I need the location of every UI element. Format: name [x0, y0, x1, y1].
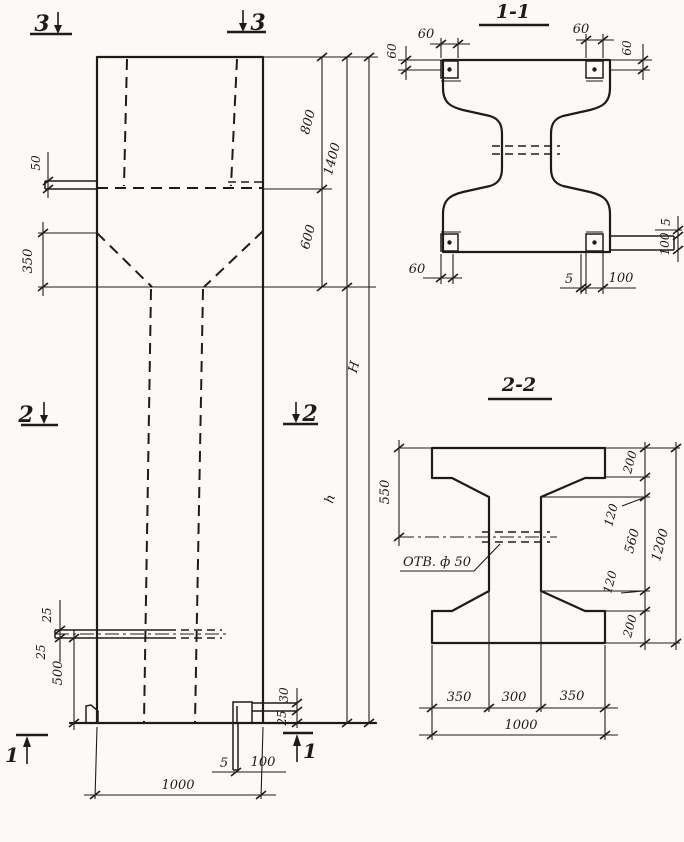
dim-label-plate-w: 100 — [251, 755, 276, 770]
dim-base-plate: 5 100 — [212, 755, 286, 776]
dim-label-bl: 60 — [409, 262, 426, 277]
dim-label-800: 800 — [298, 108, 319, 136]
section-marker-2-left: 2 — [17, 402, 58, 428]
section-marker-3-left: 3 — [30, 11, 72, 37]
dim-label-tr-v: 60 — [620, 40, 634, 56]
dim-label-tr-h: 60 — [573, 22, 590, 37]
dim-label-bot-200: 200 — [620, 613, 640, 640]
dim-label-r-t: 5 — [659, 218, 673, 226]
dim-label-1400: 1400 — [321, 141, 344, 177]
hole-callout: ОТВ. ф 50 — [400, 544, 500, 571]
marker-2-right-label: 2 — [301, 401, 317, 427]
drawing-sheet: 50 350 800 600 1400 h H — [0, 0, 684, 842]
dim-2-2-550: 550 — [378, 440, 432, 546]
dim-label-slot-lower: 25 — [34, 644, 48, 660]
dim-label-ledge: 50 — [29, 155, 43, 171]
dim-1-1-bottom-left: 60 — [409, 254, 462, 284]
section-2-2-outline — [432, 448, 605, 643]
marker-3-right-label: 3 — [250, 10, 265, 36]
dim-label-1000-width: 1000 — [504, 718, 537, 733]
marker-1-left-label: 1 — [5, 743, 19, 767]
dim-label-600: 600 — [298, 223, 319, 251]
section-marker-3-right: 3 — [227, 10, 266, 36]
section-marker-2-right: 2 — [283, 401, 318, 427]
dim-label-h: h — [322, 493, 339, 505]
hidden-lines-head — [97, 59, 263, 188]
down-arrow-icon — [54, 25, 62, 34]
dim-label-550: 550 — [378, 480, 393, 505]
up-arrow-icon — [293, 734, 301, 746]
dim-label-top-200: 200 — [620, 449, 640, 476]
marker-1-right-label: 1 — [303, 739, 317, 763]
dim-label-350b: 350 — [560, 689, 585, 704]
elevation-view: 50 350 800 600 1400 h H — [5, 10, 378, 799]
dim-label-taper: 350 — [21, 249, 36, 274]
dim-label-1000: 1000 — [161, 778, 194, 793]
dim-label-corner-b: 25 — [275, 710, 289, 726]
dim-label-corner-a: 30 — [277, 687, 291, 703]
dim-label-1200: 1200 — [649, 527, 672, 563]
dim-label-350a: 350 — [447, 690, 472, 705]
up-arrow-icon — [23, 736, 31, 747]
down-arrow-icon — [292, 414, 300, 423]
dim-label-560: 560 — [622, 527, 643, 555]
dim-label-br-t: 5 — [565, 272, 573, 287]
down-arrow-icon — [40, 415, 48, 424]
foot-slot — [55, 630, 228, 638]
dim-2-2-bottom: 350 300 350 1000 — [419, 645, 618, 740]
dim-width-1000: 1000 — [84, 727, 276, 799]
dim-label-br-w: 100 — [609, 271, 634, 286]
dim-right-stack: 800 600 1400 h H — [263, 53, 378, 727]
dim-1-1-right-strip: 5 100 — [655, 216, 683, 262]
dim-label-500: 500 — [51, 661, 66, 686]
section-2-2-view: 2-2 ОТВ. ф 50 550 — [378, 374, 681, 740]
column-drawing: 50 350 800 600 1400 h H — [0, 0, 684, 842]
hidden-lines-taper — [38, 231, 376, 722]
embedded-plate-bottom-right — [586, 232, 603, 251]
section-marker-1-right: 1 — [283, 733, 317, 763]
dim-label-tl-h: 60 — [418, 27, 435, 42]
hole-diameter-label: ОТВ. ф 50 — [403, 555, 471, 570]
dim-corner-30-25: 30 25 — [275, 687, 302, 728]
dim-label-r-w: 100 — [658, 232, 672, 255]
section-2-2-title: 2-2 — [501, 374, 536, 396]
dim-1-1-top-right: 60 60 — [573, 22, 652, 80]
dim-label-taper-top-120: 120 — [601, 502, 621, 528]
dim-slot-25-25: 25 25 — [34, 600, 65, 662]
dim-label-H: H — [346, 359, 364, 375]
dim-2-2-right: 200 120 560 120 200 1200 — [541, 442, 681, 650]
dim-1-1-bottom-right: 5 100 — [560, 253, 636, 294]
section-marker-1-left: 1 — [5, 735, 48, 767]
down-arrow-icon — [239, 23, 247, 32]
dim-foot-500: 500 — [51, 630, 79, 730]
embedded-plate-top-right — [586, 61, 603, 81]
dim-ledge-50: 50 — [29, 152, 53, 198]
section-1-1-title: 1-1 — [496, 1, 530, 23]
dim-taper-350: 350 — [21, 222, 97, 296]
dim-label-slot-upper: 25 — [40, 607, 54, 623]
hole-lines — [400, 532, 557, 542]
section-1-1-view: 1-1 — [385, 1, 683, 294]
dim-label-300: 300 — [502, 690, 527, 705]
section-1-1-outline — [443, 60, 610, 252]
dim-label-plate-t: 5 — [220, 756, 228, 771]
dim-label-tl-v: 60 — [385, 43, 399, 59]
